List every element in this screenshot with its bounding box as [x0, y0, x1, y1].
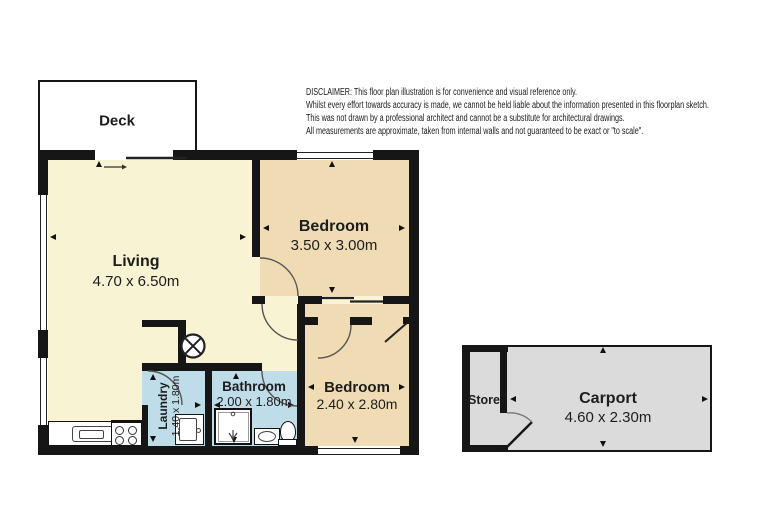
disclaimer-block: DISCLAIMER: This floor plan illustration…: [306, 86, 766, 138]
wall-hall-stub: [142, 320, 186, 327]
vanity-basin: [258, 431, 276, 442]
floor-plan: DISCLAIMER: This floor plan illustration…: [0, 0, 768, 512]
room-dimensions: 2.00 x 1.80m: [216, 394, 291, 409]
room-name: Bedroom: [291, 217, 378, 236]
measure-arrow-icon: [263, 225, 269, 231]
measure-arrow-icon: [702, 396, 708, 402]
wall-bedrooms-b: [298, 296, 322, 304]
measure-arrow-icon: [150, 374, 156, 380]
room-dimensions: 3.50 x 3.00m: [291, 236, 378, 255]
window-bedroom-second: [318, 448, 400, 455]
store-wall-right: [500, 345, 507, 413]
measure-arrow-icon: [231, 437, 237, 443]
measure-arrow-icon: [50, 234, 56, 240]
measure-arrow-icon: [510, 396, 516, 402]
stove-burner: [115, 436, 124, 445]
measure-arrow-icon: [240, 234, 246, 240]
disclaimer-line: DISCLAIMER: This floor plan illustration…: [306, 86, 637, 99]
bathroom-label: Bathroom 2.00 x 1.80m: [216, 379, 291, 409]
sliding-door-opening: [95, 150, 173, 160]
room-name: Laundry: [157, 376, 170, 437]
wall-bathroom-bedroom2: [297, 304, 305, 446]
measure-arrow-icon: [600, 441, 606, 447]
measure-arrow-icon: [329, 287, 335, 293]
wall-bedrooms-a: [252, 296, 265, 304]
room-dimensions: 4.60 x 2.30m: [565, 408, 652, 427]
bedroom-second-label: Bedroom 2.40 x 2.80m: [317, 379, 398, 413]
measure-arrow-icon: [308, 384, 314, 390]
disclaimer-line: All measurements are approximate, taken …: [306, 125, 637, 138]
measure-arrow-icon: [96, 161, 102, 167]
room-dimensions: 1.40 x 1.80m: [170, 376, 183, 437]
room-name: Bedroom: [317, 379, 398, 396]
wall-laundry-left: [142, 405, 148, 446]
wall-bedroom2-top-a: [305, 317, 318, 325]
disclaimer-line: Whilst every effort towards accuracy is …: [306, 99, 637, 112]
room-dimensions: 4.70 x 6.50m: [93, 272, 180, 292]
carport-label: Carport 4.60 x 2.30m: [565, 389, 652, 427]
wall-bedroom2-top-b: [350, 317, 372, 325]
measure-arrow-icon: [329, 161, 335, 167]
measure-arrow-icon: [399, 225, 405, 231]
disclaimer-line: This was not drawn by a professional arc…: [306, 112, 637, 125]
measure-arrow-icon: [150, 436, 156, 442]
deck-label: Deck: [99, 113, 135, 130]
bedroom-second-fill: [305, 304, 410, 446]
washing-machine-dial: [196, 428, 201, 433]
measure-arrow-icon: [352, 437, 358, 443]
window-bedroom-main: [297, 152, 373, 159]
window-living-2: [40, 358, 47, 425]
wall-bedrooms-c: [383, 296, 419, 304]
room-name: Bathroom: [216, 379, 291, 394]
measure-arrow-icon: [399, 384, 405, 390]
wall-living-bedroom: [252, 159, 260, 257]
bedroom-main-label: Bedroom 3.50 x 3.00m: [291, 217, 378, 255]
stove-burner: [115, 426, 124, 435]
room-dimensions: 2.40 x 2.80m: [317, 396, 398, 413]
stove-burner: [128, 426, 137, 435]
laundry-label: Laundry 1.40 x 1.80m: [157, 376, 183, 437]
wall-wet-top-a: [142, 363, 262, 371]
store-label: Store: [468, 393, 500, 407]
room-name: Carport: [565, 389, 652, 408]
measure-arrow-icon: [600, 347, 606, 353]
kitchen-sink-bowl: [79, 430, 104, 439]
room-name: Living: [93, 252, 180, 272]
measure-arrow-icon: [195, 402, 201, 408]
wall-laundry-bathroom: [205, 371, 212, 446]
stove-burner: [128, 436, 137, 445]
store-wall-bottom: [462, 445, 508, 452]
window-living-1: [40, 195, 47, 330]
living-label: Living 4.70 x 6.50m: [93, 252, 180, 292]
toilet-cistern: [278, 439, 297, 446]
